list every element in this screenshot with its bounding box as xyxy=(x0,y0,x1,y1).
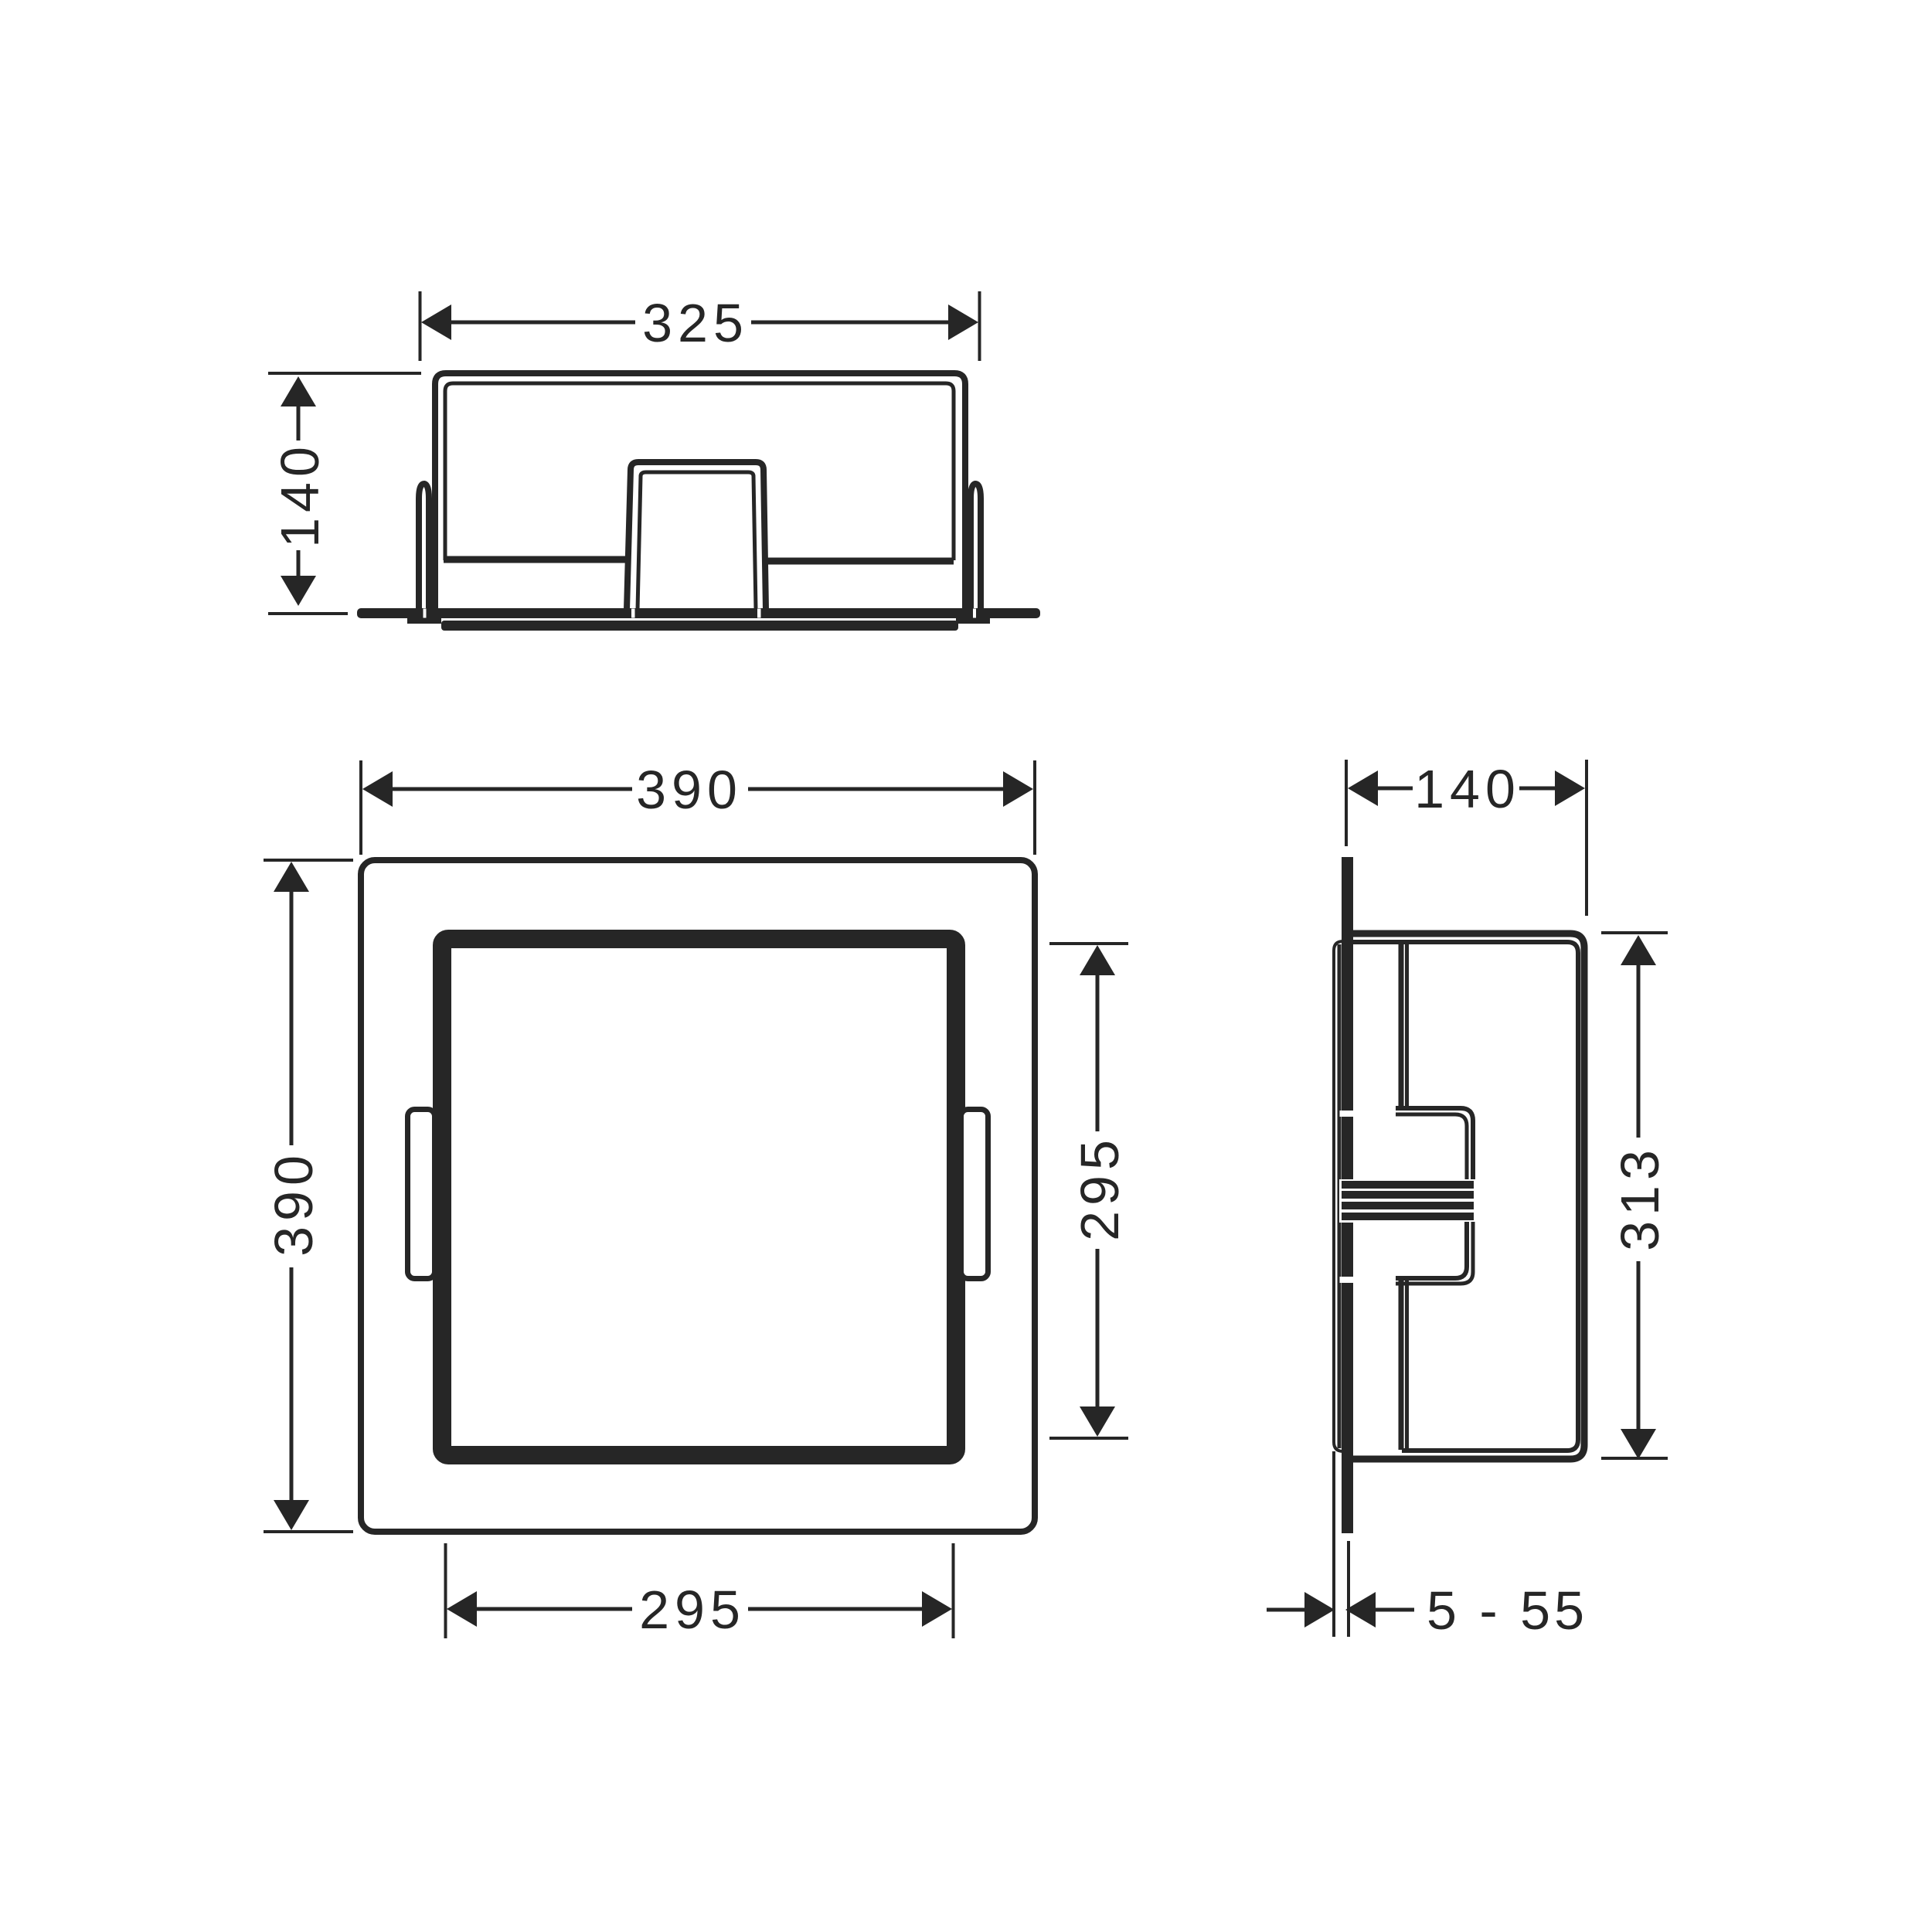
svg-text:295: 295 xyxy=(1070,1134,1130,1241)
svg-text:390: 390 xyxy=(264,1150,324,1257)
svg-text:140: 140 xyxy=(1414,759,1521,819)
svg-text:5 - 55: 5 - 55 xyxy=(1427,1580,1588,1641)
svg-text:390: 390 xyxy=(636,760,743,820)
svg-text:295: 295 xyxy=(639,1580,746,1640)
svg-text:325: 325 xyxy=(642,293,749,353)
svg-text:313: 313 xyxy=(1610,1145,1670,1251)
svg-text:140: 140 xyxy=(270,441,330,548)
